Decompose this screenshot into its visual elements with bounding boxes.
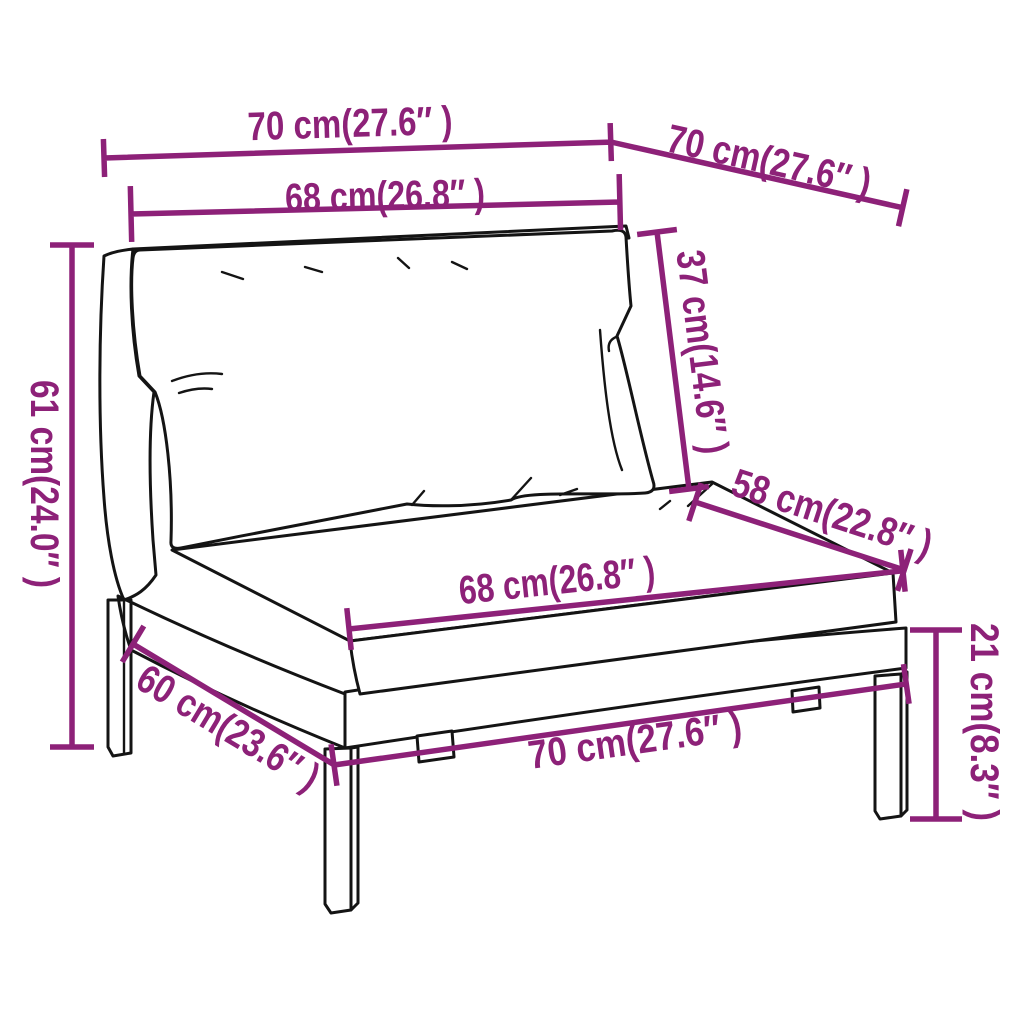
dim-leg-height: 21 cm(8.3″ ) — [910, 623, 1006, 821]
leg-front-left-side — [351, 747, 358, 910]
dim-backrest-width: 68 cm(26.8″ ) — [130, 172, 620, 242]
diagram-canvas: 70 cm(27.6″ ) 70 cm(27.6″ ) 68 cm(26.8″ … — [0, 0, 1024, 1024]
dim-backrest-width-label: 68 cm(26.8″ ) — [284, 172, 485, 221]
dim-seat-top-width: 70 cm(27.6″ ) — [103, 99, 611, 177]
dim-seat-top-depth: 70 cm(27.6″ ) — [607, 117, 907, 227]
leg-front-left — [325, 747, 358, 913]
dim-seat-top-depth-label: 70 cm(27.6″ ) — [663, 117, 876, 206]
dim-leg-height-label: 21 cm(8.3″ ) — [962, 623, 1006, 821]
dim-overall-height-label: 61 cm(24.0″ ) — [22, 380, 66, 588]
leg-front-left-face — [325, 748, 351, 913]
dim-leg-height-line — [910, 630, 962, 819]
leg-front-right — [875, 672, 907, 819]
dim-base-side-depth: 60 cm(23.6″ ) — [122, 626, 345, 800]
dim-back-cushion-height: 37 cm(14.6″ ) — [637, 230, 736, 492]
dim-overall-height: 61 cm(24.0″ ) — [22, 245, 94, 747]
dim-back-cushion-height-label: 37 cm(14.6″ ) — [667, 248, 736, 457]
diagram-svg: 70 cm(27.6″ ) 70 cm(27.6″ ) 68 cm(26.8″ … — [0, 0, 1024, 1024]
dim-seat-top-width-label: 70 cm(27.6″ ) — [247, 99, 453, 149]
leg-back-left — [108, 600, 131, 756]
leg-back-left-face — [108, 600, 131, 756]
leg-front-right-face — [875, 674, 901, 819]
